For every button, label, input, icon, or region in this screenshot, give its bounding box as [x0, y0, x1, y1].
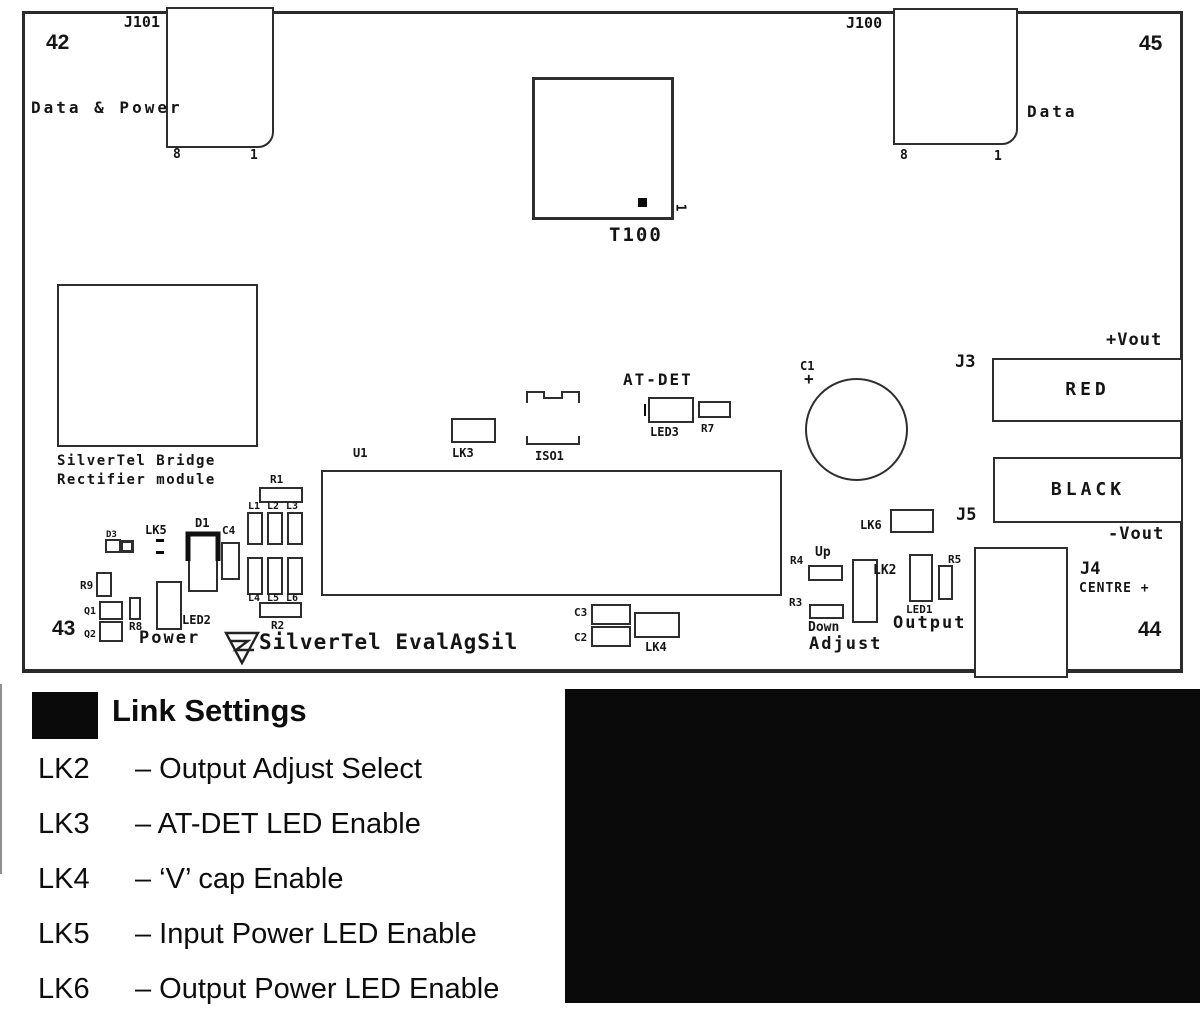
t100-pin-1: 1	[673, 204, 686, 212]
iso1-outline-bottom	[526, 436, 580, 446]
u1-ref: U1	[353, 447, 367, 459]
j100-connector	[893, 8, 1018, 145]
red-terminal-label: RED	[1065, 381, 1110, 399]
l5-component	[267, 557, 283, 595]
bridge-rectifier-module	[57, 284, 258, 447]
down-label: Down	[808, 621, 839, 634]
up-label: Up	[815, 546, 831, 559]
legend-item-lk5: LK5– Input Power LED Enable	[38, 918, 477, 951]
j3-ref: J3	[955, 354, 975, 371]
iso1-ref: ISO1	[535, 450, 564, 462]
j101-connector	[166, 7, 274, 148]
c1-polarity: +	[804, 371, 814, 387]
j101-description: Data & Power	[31, 100, 183, 116]
iso1-outline-top	[526, 390, 580, 404]
legend-item-desc: – AT-DET LED Enable	[135, 808, 421, 840]
t100-pin1-dot	[638, 198, 647, 207]
corner-number-44: 44	[1138, 619, 1161, 640]
legend-item-ref: LK6	[38, 973, 135, 1006]
led2-ref: LED2	[182, 614, 211, 626]
legend-item-lk6: LK6– Output Power LED Enable	[38, 973, 499, 1006]
page-edge-line	[0, 684, 2, 874]
at-det-label: AT-DET	[623, 372, 693, 388]
r5-ref: R5	[948, 554, 961, 565]
lk4-link	[634, 612, 680, 638]
l6-component	[287, 557, 303, 595]
c1-capacitor	[805, 378, 908, 481]
lk3-link	[451, 418, 496, 443]
legend-item-desc: – Input Power LED Enable	[135, 918, 477, 950]
l1-ref: L1	[248, 502, 260, 512]
bridge-label-line2: Rectifier module	[57, 473, 216, 487]
silvertel-logo-icon	[224, 627, 260, 665]
bridge-label-line1: SilverTel Bridge	[57, 454, 216, 468]
lk4-ref: LK4	[645, 641, 667, 653]
q1-component	[99, 601, 123, 620]
adjust-label: Adjust	[809, 636, 882, 653]
j100-pin-8: 8	[900, 149, 908, 162]
j4-ref: J4	[1080, 561, 1100, 578]
corner-number-45: 45	[1139, 33, 1162, 54]
j5-ref: J5	[956, 507, 976, 524]
corner-number-43: 43	[52, 618, 75, 639]
q2-ref: Q2	[84, 630, 96, 640]
l3-ref: L3	[286, 502, 298, 512]
r9-component	[96, 572, 112, 597]
r5-component	[938, 565, 953, 600]
legend-item-ref: LK3	[38, 808, 135, 841]
lk2-ref: LK2	[873, 564, 896, 577]
q2-component	[99, 621, 123, 642]
r2-component	[259, 602, 302, 618]
d1-ref: D1	[195, 517, 209, 529]
legend-item-desc: – ‘V’ cap Enable	[135, 863, 344, 895]
pcb-diagram: J101 42 Data & Power 8 1 1 T100 J100 45 …	[0, 0, 1200, 1014]
legend-title: Link Settings	[112, 695, 307, 726]
j4-centre-label: CENTRE +	[1079, 582, 1150, 595]
j101-pin-8: 8	[173, 148, 181, 161]
j4-connector	[974, 547, 1068, 678]
output-label: Output	[893, 615, 966, 632]
r4-component	[808, 565, 843, 581]
d3-component-b	[120, 540, 134, 553]
l4-component	[247, 557, 263, 595]
l2-component	[267, 512, 283, 545]
power-label: Power	[139, 630, 200, 647]
legend-item-lk3: LK3– AT-DET LED Enable	[38, 808, 421, 841]
j100-ref: J100	[846, 16, 882, 31]
redaction-black-rectangle	[565, 689, 1200, 1003]
t100-ref: T100	[609, 226, 663, 245]
t100-transformer	[532, 77, 674, 220]
black-terminal-label: BLACK	[1051, 481, 1125, 499]
legend-item-ref: LK5	[38, 918, 135, 951]
c2-component	[591, 626, 631, 647]
lk6-ref: LK6	[860, 519, 882, 531]
legend-item-ref: LK4	[38, 863, 135, 896]
lk5-pad-top	[156, 539, 164, 542]
legend-bullet-square	[32, 692, 98, 739]
c2-ref: C2	[574, 632, 587, 643]
u1-ic	[321, 470, 782, 596]
lk5-ref: LK5	[145, 524, 167, 536]
l1-component	[247, 512, 263, 545]
lk3-ref: LK3	[452, 447, 474, 459]
l3-component	[287, 512, 303, 545]
j100-pin-1: 1	[994, 150, 1002, 163]
r9-ref: R9	[80, 580, 93, 591]
c3-component	[591, 604, 631, 625]
d1-cathode-band	[185, 531, 221, 562]
c3-ref: C3	[574, 607, 587, 618]
legend-item-desc: – Output Adjust Select	[135, 753, 422, 785]
j5-black-terminal: BLACK	[993, 457, 1183, 523]
r1-ref: R1	[270, 474, 283, 485]
lk5-pad-bottom	[156, 551, 164, 554]
r7-ref: R7	[701, 423, 714, 434]
j101-pin-1: 1	[250, 149, 258, 162]
legend-item-lk4: LK4– ‘V’ cap Enable	[38, 863, 344, 896]
r3-ref: R3	[789, 597, 802, 608]
r8-component	[129, 597, 141, 620]
legend-item-desc: – Output Power LED Enable	[135, 973, 499, 1005]
lk6-link	[890, 509, 934, 533]
q1-ref: Q1	[84, 607, 96, 617]
legend-item-lk2: LK2– Output Adjust Select	[38, 753, 422, 786]
j100-description: Data	[1027, 104, 1078, 120]
vout-minus-label: -Vout	[1108, 526, 1164, 543]
led3-ref: LED3	[650, 426, 679, 438]
led2-component	[156, 581, 182, 630]
c4-component	[221, 542, 240, 580]
r3-component	[809, 604, 844, 619]
led1-component	[909, 554, 933, 602]
l2-ref: L2	[267, 502, 279, 512]
corner-number-42: 42	[46, 32, 69, 53]
r4-ref: R4	[790, 555, 803, 566]
led3-polarity-mark	[644, 404, 646, 416]
vout-plus-label: +Vout	[1106, 332, 1162, 349]
legend-item-ref: LK2	[38, 753, 135, 786]
j3-red-terminal: RED	[992, 358, 1183, 422]
led3-component	[648, 397, 694, 423]
d3-component-a	[105, 539, 121, 553]
c4-ref: C4	[222, 525, 235, 536]
brand-title: SilverTel EvalAgSil	[259, 632, 518, 653]
r7-component	[698, 401, 731, 418]
j101-ref: J101	[108, 15, 160, 30]
